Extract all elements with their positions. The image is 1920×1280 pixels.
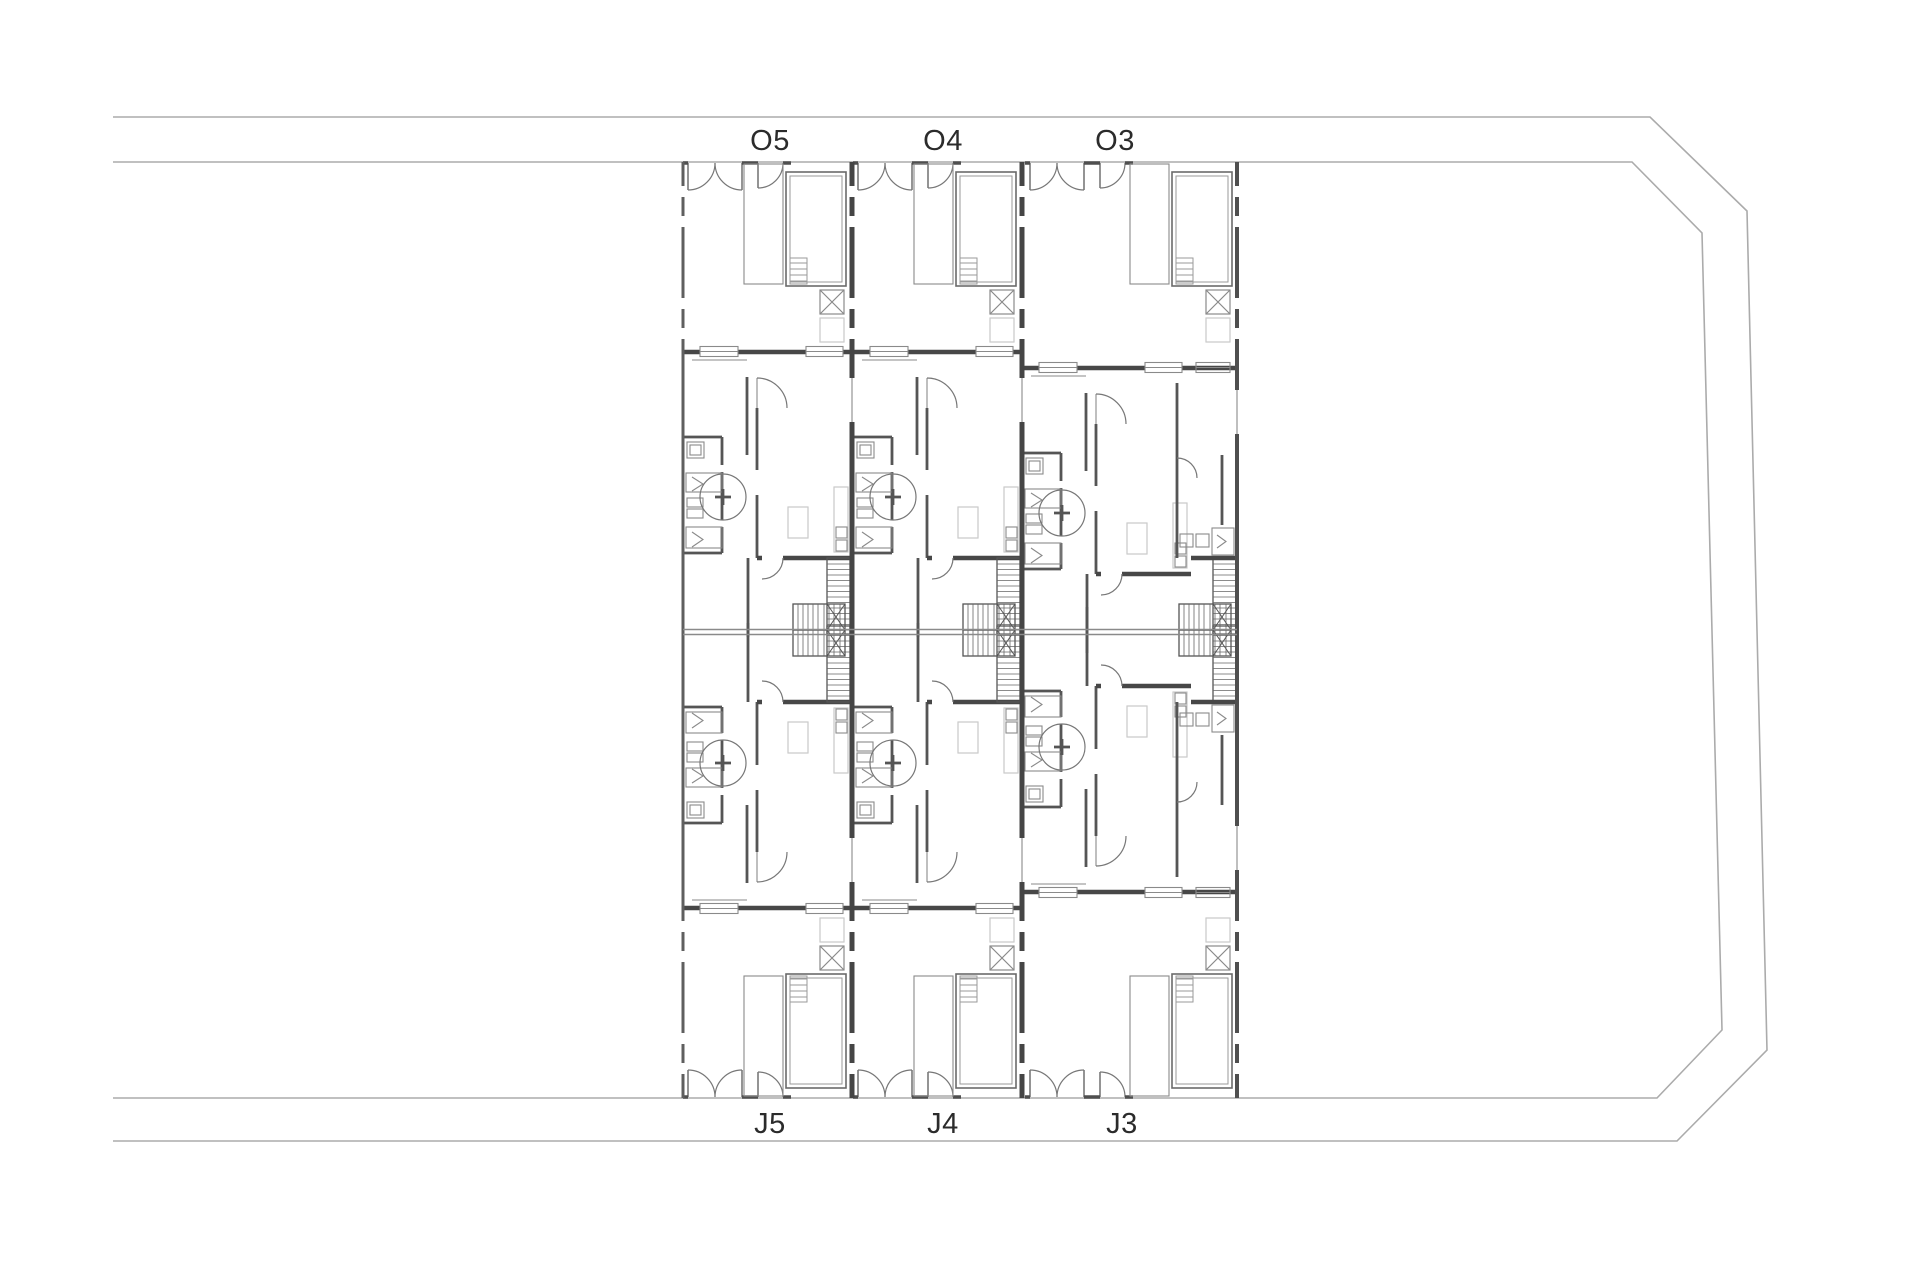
unit-label-o5: O5 <box>750 125 790 157</box>
unit-label-j4: J4 <box>927 1108 959 1140</box>
mirrored-row <box>683 607 1237 1097</box>
unit-label-o3: O3 <box>1095 125 1135 157</box>
floor-plan-canvas: O5 O4 O3 J5 J4 J3 <box>0 0 1920 1280</box>
site-plan-svg: O5 O4 O3 J5 J4 J3 <box>0 0 1920 1280</box>
unit-label-j3: J3 <box>1106 1108 1138 1140</box>
unit-plan-j3 <box>1022 607 1237 1097</box>
unit-plan-o3 <box>1022 163 1237 653</box>
unit-plan-o5 <box>683 163 852 637</box>
unit-label-o4: O4 <box>923 125 963 157</box>
unit-block <box>680 162 1242 1098</box>
unit-plan-j5 <box>683 623 852 1097</box>
mid-block-joint <box>683 630 1237 635</box>
unit-plan-j4 <box>853 623 1022 1097</box>
unit-label-j5: J5 <box>754 1108 786 1140</box>
unit-plan-o4 <box>853 163 1022 637</box>
